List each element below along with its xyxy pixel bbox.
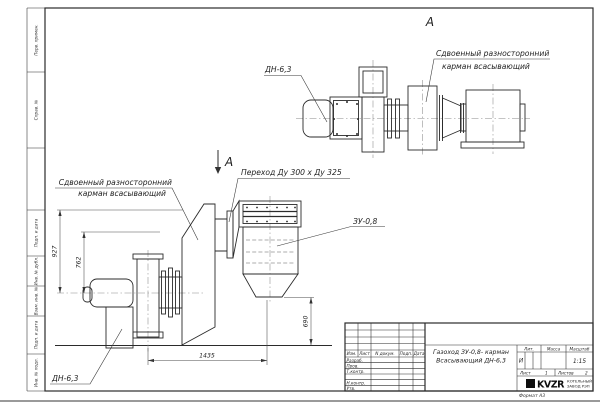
- row-prov: Пров.: [347, 364, 359, 369]
- revision-table: Изм. Лист N докум. Подп. Дата Разраб. Пр…: [345, 323, 425, 391]
- rev-col-izm: Изм.: [347, 351, 357, 356]
- row-tkontr: Т.контр.: [347, 369, 365, 374]
- top-fan-label: ДН-6,3: [264, 65, 292, 74]
- side-label-podp-data-1: Подп. и дата: [34, 218, 39, 247]
- logo-text: KVZR: [537, 380, 565, 391]
- lit-value: И: [519, 359, 524, 365]
- dim-duct-height: 762: [76, 257, 83, 269]
- collector-body: [243, 227, 298, 297]
- main-pocket-label-line2: карман всасывающий: [78, 189, 166, 198]
- row-nkontr: Н.контр.: [347, 381, 366, 386]
- main-suction-pocket: [182, 204, 215, 345]
- dim-length: 1435: [199, 353, 215, 360]
- sheets-label: Листов: [557, 371, 574, 376]
- pocket-outlet-duct: [215, 219, 227, 251]
- drawing-sheet: Перв. примен. Справ. № Подп. и дата Инв.…: [0, 0, 600, 402]
- side-columns: Перв. примен. Справ. № Подп. и дата Инв.…: [34, 24, 39, 387]
- sheet-value: 1: [545, 371, 548, 376]
- view-a-label: А: [425, 15, 434, 29]
- dimension-927: 927: [52, 210, 184, 293]
- dimension-762: 762: [76, 232, 161, 293]
- side-label-inv-podl: Инв. № подл.: [34, 358, 39, 387]
- rev-col-data: Дата: [413, 351, 425, 356]
- mass-label: Масса: [547, 347, 561, 352]
- company-name-line2: ЗАВОД РЭП: [567, 384, 590, 389]
- side-label-podp-data-2: Подп. и дата: [34, 320, 39, 349]
- dim-outlet-height: 690: [303, 316, 310, 328]
- row-razrab: Разраб.: [347, 358, 363, 363]
- section-arrow: [215, 150, 221, 174]
- title-block: Изм. Лист N докум. Подп. Дата Разраб. Пр…: [345, 323, 593, 391]
- top-pocket-label-line2: карман всасывающий: [442, 62, 530, 71]
- top-fan-leader: [264, 76, 327, 123]
- sheet-label: Лист: [519, 371, 531, 376]
- dim-total-height: 927: [52, 246, 59, 258]
- logo-mark-icon: [526, 379, 535, 388]
- format-note: Формат А3: [519, 393, 545, 399]
- top-transition: [440, 95, 464, 141]
- company-logo: KVZR КОТЕЛЬНЫЙ ЗАВОД РЭП: [526, 379, 592, 391]
- main-compensator: [159, 268, 182, 317]
- transition-label: Переход Ду 300 х Ду 325: [241, 168, 342, 177]
- side-label-vzam-inv: Взам. инв. №: [34, 286, 39, 315]
- dimension-690: 690: [284, 298, 314, 346]
- collector-leader: [277, 227, 385, 247]
- rev-col-list: Лист: [358, 351, 370, 356]
- rev-col-podp: Подп.: [400, 351, 413, 356]
- row-utv: Утв.: [347, 386, 356, 391]
- doc-title-line2: Всасывающий ДН-6,3: [436, 358, 506, 365]
- top-fan-flange: [330, 97, 362, 139]
- main-pocket-label-line1: Сдвоенный разносторонний: [59, 178, 172, 187]
- collector-label: ЗУ-0,8: [353, 217, 377, 226]
- section-a-label: А: [224, 155, 233, 169]
- doc-title-line1: Газоход ЗУ-0,8- карман: [433, 349, 509, 356]
- lit-label: Лит.: [523, 347, 534, 352]
- side-label-inv-dubl: Инв. № дубл.: [34, 257, 39, 286]
- side-label-sprav: Справ. №: [34, 99, 39, 120]
- main-view: А 927 762 1435 690 Сдвоенный разност: [50, 150, 385, 384]
- top-view: А: [264, 15, 550, 158]
- top-pocket-label-line1: Сдвоенный разносторонний: [436, 49, 549, 58]
- side-label-perv-primen: Перв. примен.: [34, 24, 39, 55]
- main-fan: [83, 279, 133, 348]
- lit-massa-masshtab: Лит. Масса Масштаб И 1:15 Лист 1 Листов …: [517, 345, 593, 376]
- transition-leader: [229, 179, 350, 223]
- transition-cone: [233, 201, 239, 258]
- main-fan-label: ДН-6,3: [51, 374, 79, 383]
- rev-col-dokum: N докум.: [375, 351, 394, 356]
- scale-label: Масштаб: [570, 347, 590, 352]
- sheets-value: 2: [585, 371, 588, 376]
- drawing-canvas: Перв. примен. Справ. № Подп. и дата Инв.…: [0, 0, 600, 400]
- scale-value: 1:15: [573, 359, 586, 365]
